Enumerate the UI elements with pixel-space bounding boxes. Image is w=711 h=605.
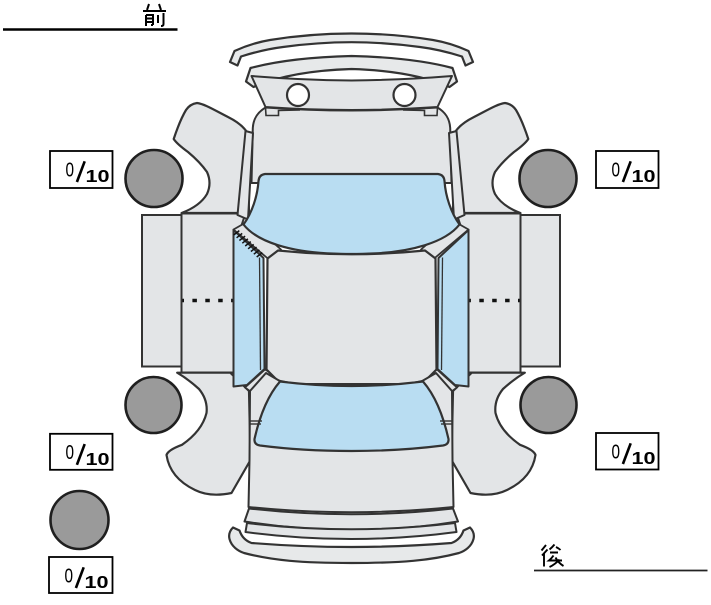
svg-text:10: 10 [632, 166, 656, 186]
svg-text:10: 10 [86, 449, 110, 469]
svg-text:0: 0 [65, 565, 74, 587]
svg-text:10: 10 [86, 166, 110, 186]
svg-text:0: 0 [66, 159, 75, 181]
svg-text:10: 10 [632, 448, 656, 468]
svg-text:0: 0 [612, 441, 621, 463]
svg-text:0: 0 [612, 159, 621, 181]
svg-text:10: 10 [85, 572, 109, 592]
svg-text:0: 0 [66, 442, 75, 464]
